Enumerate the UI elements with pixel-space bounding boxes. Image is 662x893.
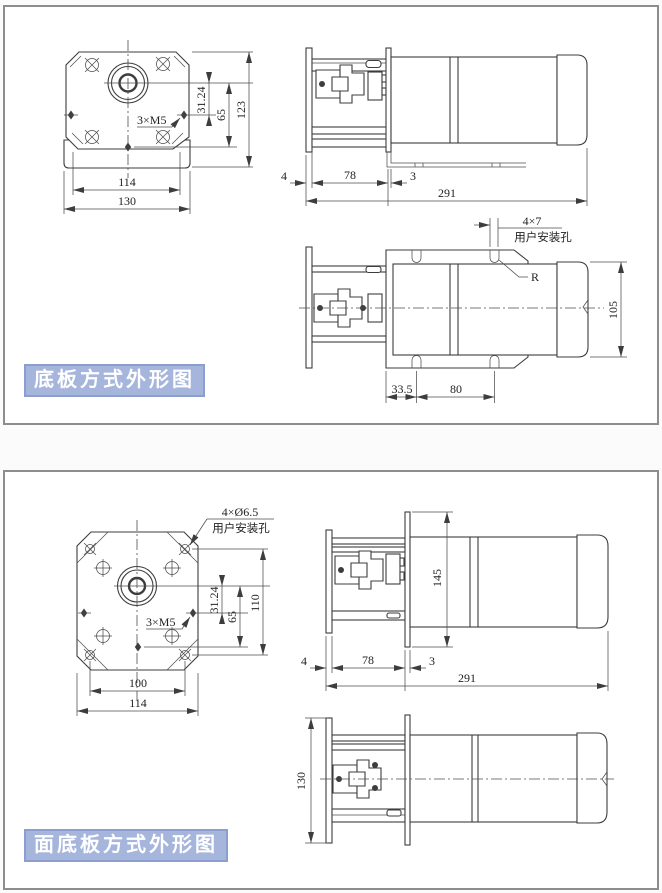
motor-end-cap	[557, 262, 588, 357]
dim-label-33-5: 33.5	[392, 382, 413, 396]
dim-label-65: 65	[214, 109, 228, 121]
rear-bracket-plate	[326, 718, 332, 843]
motor-body	[410, 735, 577, 822]
dim-label-78: 78	[362, 653, 374, 667]
thread-label: 3×M5	[146, 615, 175, 629]
shaft-coupler	[335, 551, 383, 589]
dim-label-105: 105	[606, 301, 620, 319]
dim-label-3: 3	[429, 654, 435, 668]
panel-face-plate-style: 4×Ø6.5 用户安装孔 3×M5 31.24 65 110 100 114	[3, 470, 659, 890]
top-view: 130	[294, 715, 614, 845]
panel-title: 面底板方式外形图	[34, 834, 218, 856]
dim-label-4: 4	[301, 654, 307, 668]
drawing-face-plate-style: 4×Ø6.5 用户安装孔 3×M5 31.24 65 110 100 114	[5, 472, 657, 888]
side-view: 4 78 3 291	[281, 48, 587, 206]
dim-label-123: 123	[234, 101, 248, 119]
dim-label-100: 100	[129, 676, 147, 690]
dim-label-130: 130	[294, 772, 308, 790]
bottom-bracket	[387, 152, 526, 167]
slot-callout-text: 用户安装孔	[514, 230, 572, 244]
user-mount-hole	[84, 649, 96, 661]
side-view: 145 4 78 3 291	[301, 512, 608, 691]
dim-label-130: 130	[118, 194, 136, 208]
drawing-bottom-plate-style: 3×M5 31.24 65 123 114 130	[5, 7, 657, 423]
dim-label-80: 80	[450, 382, 462, 396]
radius-label: R	[531, 270, 539, 284]
user-mount-hole	[179, 649, 191, 661]
panel-title-badge: 底板方式外形图	[24, 364, 205, 397]
dim-label-3: 3	[410, 169, 416, 183]
hole-callout-text: 用户安装孔	[212, 521, 270, 535]
panel-title: 底板方式外形图	[34, 369, 195, 391]
motor-body	[391, 57, 557, 143]
dim-label-110: 110	[248, 594, 262, 612]
slot-callout-size: 4×7	[523, 214, 542, 228]
face-mount-plate	[405, 715, 410, 845]
dim-label-114: 114	[129, 696, 147, 710]
rear-bracket-plate	[306, 48, 312, 152]
dim-label-291: 291	[458, 671, 476, 685]
thread-label: 3×M5	[137, 113, 166, 127]
hole-callout-size: 4×Ø6.5	[222, 505, 258, 519]
motor-end-cap	[557, 55, 587, 145]
user-mount-hole	[84, 543, 96, 555]
mount-plate	[386, 48, 391, 152]
dim-label-78: 78	[344, 168, 356, 182]
dim-label-offset: 31.24	[207, 587, 221, 614]
dim-label-offset: 31.24	[194, 87, 208, 114]
user-mount-hole	[179, 543, 191, 555]
panel-bottom-plate-style: 3×M5 31.24 65 123 114 130	[3, 5, 659, 425]
dim-label-291: 291	[438, 186, 456, 200]
dim-label-114: 114	[118, 175, 136, 189]
front-view: 3×M5 31.24 65 123 114 130	[64, 40, 253, 214]
dim-label-65: 65	[225, 611, 239, 623]
dim-label-4: 4	[281, 169, 287, 183]
face-mount-plate	[405, 512, 410, 647]
front-view: 4×Ø6.5 用户安装孔 3×M5 31.24 65 110 100 114	[77, 505, 274, 716]
panel-title-badge: 面底板方式外形图	[24, 829, 228, 862]
top-view: 4×7 用户安装孔 R 105 33.5 80	[299, 214, 627, 403]
dim-label-145: 145	[430, 569, 444, 587]
motor-end-cap	[577, 535, 608, 628]
rear-bracket-plate	[326, 530, 332, 633]
